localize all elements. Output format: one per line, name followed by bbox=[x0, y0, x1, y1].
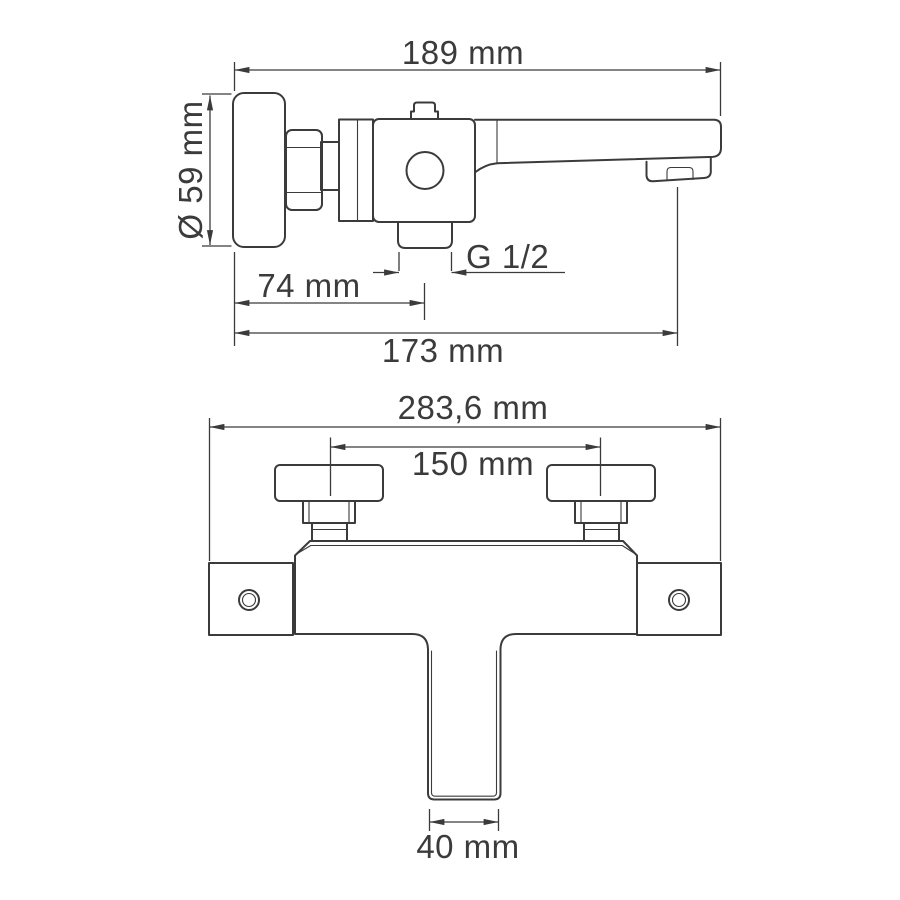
front-view: 283,6 mm 150 mm bbox=[209, 389, 721, 865]
dim-thread-size: G 1/2 bbox=[373, 238, 565, 275]
dim-label-spout-width: 40 mm bbox=[416, 828, 519, 865]
collar-side bbox=[321, 142, 339, 190]
side-view: 189 mm Ø 59 mm G 1/2 74 mm 173 mm bbox=[172, 34, 721, 369]
dim-label-connection-centers: 150 mm bbox=[412, 445, 534, 482]
cartridge-circle bbox=[407, 152, 444, 189]
dim-label-wall-to-shower-outlet: 74 mm bbox=[257, 267, 360, 304]
left-union bbox=[275, 465, 383, 541]
dim-label-escutcheon-diameter: Ø 59 mm bbox=[172, 100, 209, 239]
dim-spout-width: 40 mm bbox=[416, 809, 519, 865]
wall-plate-side bbox=[233, 93, 285, 247]
body-top-inner-line bbox=[297, 546, 636, 555]
side-view-faucet-outline bbox=[233, 93, 721, 248]
right-mounting-ear bbox=[637, 563, 721, 635]
dim-label-thread-size: G 1/2 bbox=[466, 238, 549, 275]
spout-inner-line bbox=[432, 651, 497, 796]
body-cap-side bbox=[339, 120, 373, 222]
dim-total-length: 189 mm bbox=[235, 34, 721, 116]
valve-body-side bbox=[373, 119, 475, 222]
faucet-dimension-drawing: 189 mm Ø 59 mm G 1/2 74 mm 173 mm bbox=[0, 0, 900, 900]
dim-label-total-length: 189 mm bbox=[402, 34, 524, 71]
technical-drawing-page: 189 mm Ø 59 mm G 1/2 74 mm 173 mm bbox=[0, 0, 900, 900]
left-mounting-ear bbox=[209, 563, 293, 635]
spout-side bbox=[475, 120, 721, 172]
diverter-knob bbox=[411, 103, 438, 120]
spout-aerator-side bbox=[647, 157, 711, 181]
dim-connection-centers: 150 mm bbox=[331, 438, 601, 497]
shower-outlet-side bbox=[398, 222, 452, 248]
front-view-faucet-outline bbox=[209, 465, 721, 800]
dim-label-overall-width: 283,6 mm bbox=[398, 389, 549, 426]
dim-wall-to-shower-outlet: 74 mm bbox=[235, 267, 425, 320]
dim-escutcheon-diameter: Ø 59 mm bbox=[172, 94, 232, 246]
body-and-spout-front bbox=[295, 541, 637, 800]
connection-nut-side bbox=[286, 130, 322, 210]
dim-label-wall-to-spout-outlet: 173 mm bbox=[382, 332, 504, 369]
